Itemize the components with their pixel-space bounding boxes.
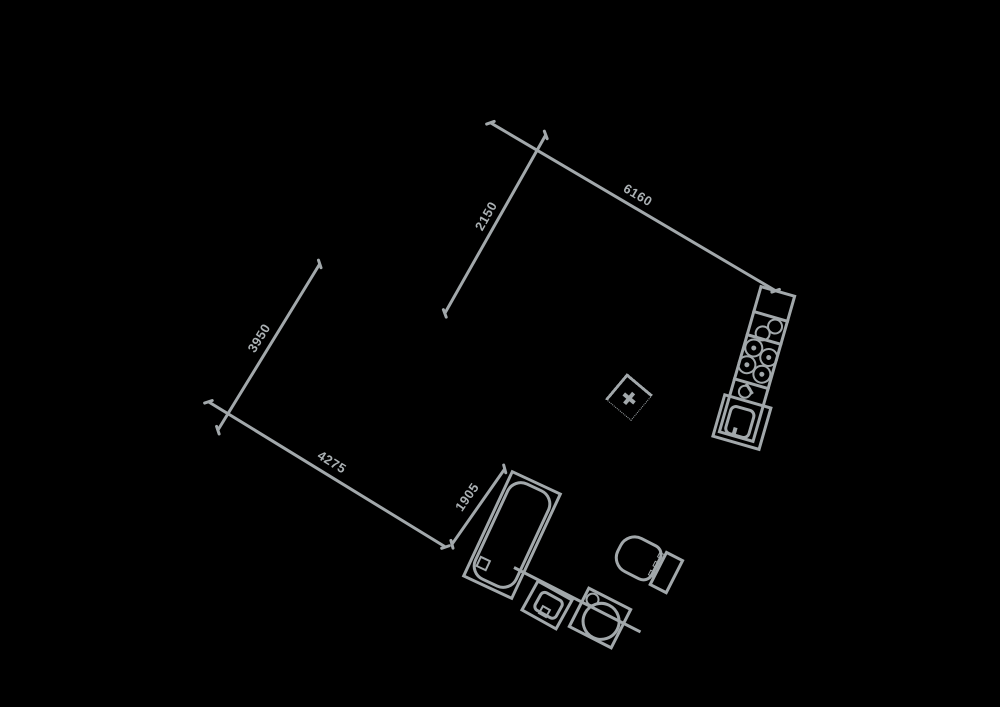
dimension-label-6160: 6160 bbox=[621, 181, 655, 210]
dimension-tick bbox=[215, 424, 221, 435]
dimension-tick bbox=[542, 129, 549, 140]
floorplan-canvas: 6160 2150 3950 4275 1905 bbox=[0, 0, 1000, 707]
dimension-line-3950 bbox=[216, 263, 321, 432]
washbasin bbox=[567, 586, 632, 650]
dimension-line-4275 bbox=[207, 400, 446, 548]
dimension-tick bbox=[203, 399, 214, 405]
sink bbox=[520, 579, 574, 631]
dimension-tick bbox=[485, 120, 496, 126]
toilet bbox=[609, 529, 684, 594]
dimension-tick bbox=[502, 463, 508, 474]
dimension-tick bbox=[441, 308, 448, 319]
dimension-line-2150 bbox=[443, 134, 547, 315]
dimension-label-2150: 2150 bbox=[472, 199, 500, 233]
dimension-tick bbox=[440, 544, 451, 550]
dimension-label-3950: 3950 bbox=[245, 321, 274, 355]
kitchen-counter bbox=[718, 285, 797, 444]
dimension-tick bbox=[449, 539, 455, 550]
dimension-line-6160 bbox=[489, 121, 777, 292]
dimension-tick bbox=[317, 258, 323, 269]
column-marker bbox=[605, 373, 653, 421]
